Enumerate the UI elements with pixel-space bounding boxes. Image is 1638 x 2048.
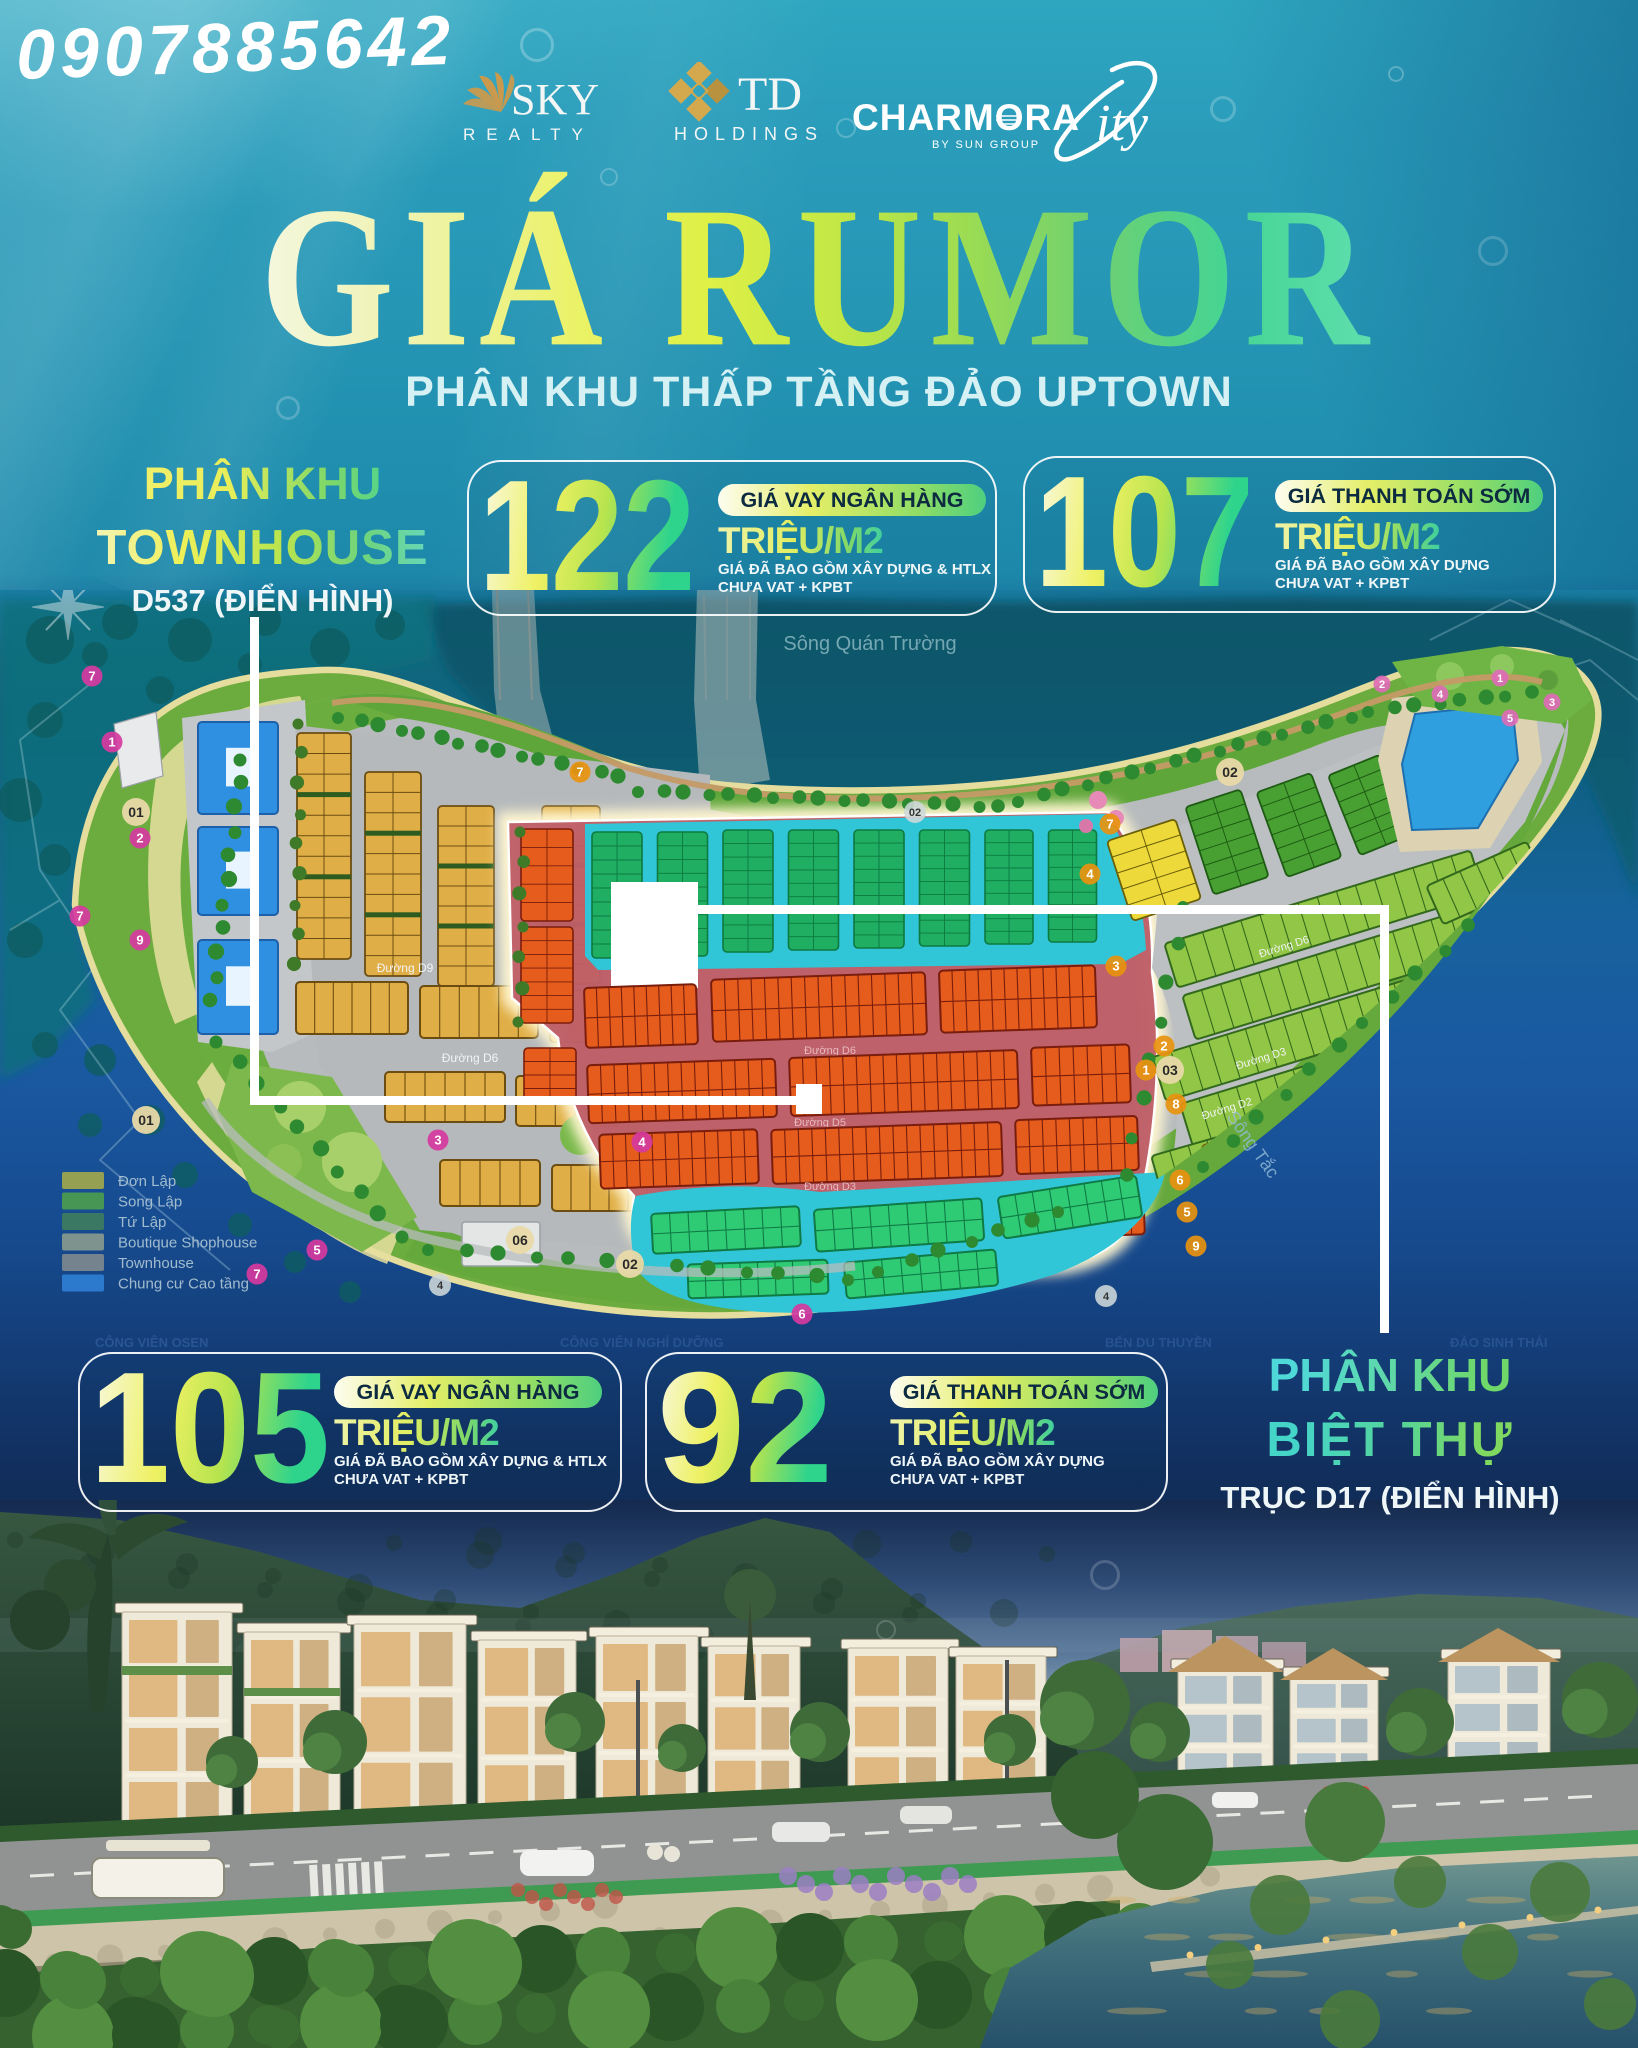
svg-text:1: 1: [108, 735, 115, 750]
svg-text:HOLDINGS: HOLDINGS: [674, 124, 824, 144]
svg-text:4: 4: [1103, 1291, 1110, 1303]
svg-text:3: 3: [1549, 697, 1555, 709]
svg-text:7: 7: [88, 669, 95, 684]
svg-text:5: 5: [1507, 713, 1513, 725]
svg-text:02: 02: [622, 1256, 638, 1272]
svg-text:7: 7: [253, 1267, 260, 1282]
svg-text:03: 03: [1162, 1062, 1178, 1078]
svg-text:06: 06: [512, 1232, 528, 1248]
svg-text:Tứ Lập: Tứ Lập: [118, 1214, 166, 1231]
svg-text:7: 7: [76, 909, 83, 924]
svg-text:Sông Quán Trường: Sông Quán Trường: [783, 633, 956, 655]
svg-text:5: 5: [1183, 1205, 1190, 1220]
svg-text:SKY: SKY: [511, 75, 599, 124]
svg-text:Chung cư Cao tầng: Chung cư Cao tầng: [118, 1276, 249, 1293]
svg-text:6: 6: [798, 1307, 805, 1322]
svg-text:4: 4: [1086, 867, 1094, 882]
svg-text:4: 4: [638, 1135, 646, 1150]
svg-text:Đường D6: Đường D6: [442, 1051, 499, 1065]
svg-text:3: 3: [1112, 959, 1119, 974]
svg-text:2: 2: [1160, 1039, 1167, 1054]
svg-text:Đường D9: Đường D9: [377, 961, 434, 975]
svg-text:02: 02: [1222, 764, 1238, 780]
svg-text:Song Lập: Song Lập: [118, 1194, 182, 1211]
svg-text:02: 02: [909, 807, 921, 819]
svg-text:4: 4: [1437, 689, 1444, 701]
svg-text:3: 3: [434, 1133, 441, 1148]
svg-text:01: 01: [138, 1112, 154, 1128]
svg-text:8: 8: [1172, 1097, 1179, 1112]
svg-text:BY SUN GROUP: BY SUN GROUP: [932, 139, 1040, 151]
svg-text:7: 7: [576, 765, 583, 780]
svg-text:6: 6: [1176, 1173, 1183, 1188]
svg-text:01: 01: [128, 804, 144, 820]
svg-text:2: 2: [1379, 679, 1385, 691]
svg-text:Đơn Lập: Đơn Lập: [118, 1173, 176, 1190]
svg-text:1: 1: [1497, 673, 1503, 685]
svg-text:2: 2: [136, 831, 143, 846]
svg-text:9: 9: [1192, 1239, 1199, 1254]
svg-text:CHARMORA: CHARMORA: [852, 97, 1080, 138]
svg-text:REALTY: REALTY: [463, 125, 594, 144]
svg-text:5: 5: [313, 1243, 320, 1258]
svg-text:7: 7: [1106, 817, 1113, 832]
svg-text:1: 1: [1142, 1063, 1149, 1078]
svg-text:TD: TD: [738, 68, 802, 121]
svg-text:9: 9: [136, 933, 143, 948]
svg-text:ity: ity: [1096, 95, 1149, 152]
svg-text:Boutique Shophouse: Boutique Shophouse: [118, 1235, 257, 1252]
svg-text:Townhouse: Townhouse: [118, 1255, 194, 1272]
svg-text:4: 4: [437, 1280, 444, 1292]
